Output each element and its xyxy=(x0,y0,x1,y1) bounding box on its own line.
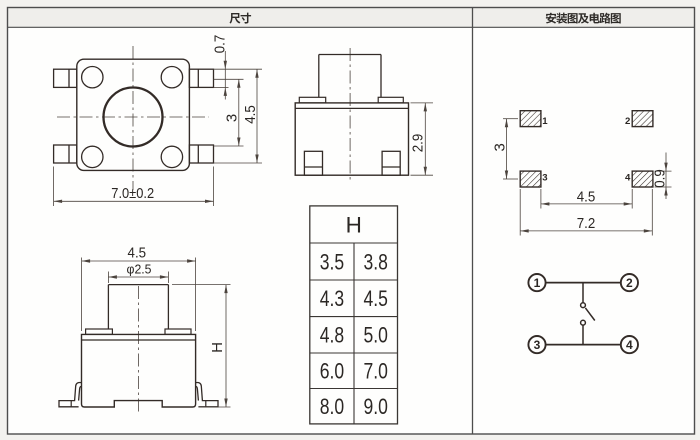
svg-text:4.3: 4.3 xyxy=(320,286,344,311)
svg-text:9.0: 9.0 xyxy=(364,394,388,419)
svg-text:2: 2 xyxy=(626,276,633,290)
svg-text:7.2: 7.2 xyxy=(577,215,596,232)
svg-text:7.0: 7.0 xyxy=(364,359,388,384)
svg-text:3: 3 xyxy=(224,114,241,122)
svg-text:4.5: 4.5 xyxy=(128,245,147,262)
svg-text:3: 3 xyxy=(542,173,547,184)
svg-text:4.5: 4.5 xyxy=(364,286,388,311)
svg-text:4.5: 4.5 xyxy=(242,105,259,124)
svg-text:5.0: 5.0 xyxy=(364,323,388,348)
svg-text:0.7: 0.7 xyxy=(211,35,228,54)
svg-text:3: 3 xyxy=(534,338,541,352)
svg-text:4: 4 xyxy=(626,338,633,352)
svg-text:2.9: 2.9 xyxy=(409,134,426,153)
svg-text:8.0: 8.0 xyxy=(320,394,344,419)
svg-text:7.0±0.2: 7.0±0.2 xyxy=(111,185,154,202)
svg-text:1: 1 xyxy=(534,276,541,290)
svg-text:H: H xyxy=(209,342,226,353)
svg-text:4.8: 4.8 xyxy=(320,323,344,348)
svg-text:0.9: 0.9 xyxy=(651,169,668,188)
svg-text:6.0: 6.0 xyxy=(320,359,344,384)
svg-text:3.5: 3.5 xyxy=(320,249,344,274)
svg-text:4.5: 4.5 xyxy=(577,189,596,206)
svg-text:H: H xyxy=(346,212,362,237)
svg-text:3.8: 3.8 xyxy=(364,249,388,274)
svg-text:1: 1 xyxy=(542,116,548,127)
svg-text:3: 3 xyxy=(492,143,509,151)
svg-text:4: 4 xyxy=(625,173,631,184)
svg-text:φ2.5: φ2.5 xyxy=(127,263,152,277)
svg-text:2: 2 xyxy=(625,116,630,127)
